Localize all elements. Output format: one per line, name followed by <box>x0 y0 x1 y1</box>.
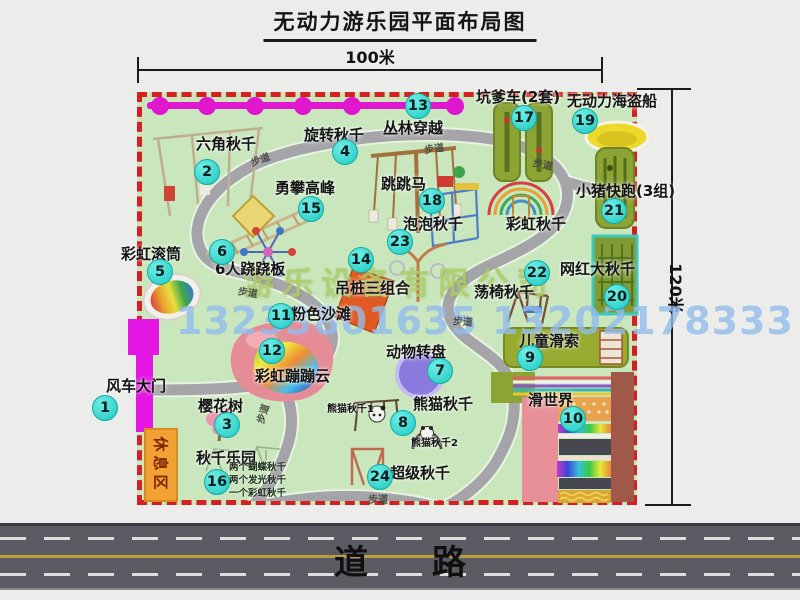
swing-park-note: 两个发光秋千 <box>229 475 286 487</box>
badge-panda-swing: 8 <box>390 410 416 436</box>
label-cherry-tree: 樱花树 <box>198 398 243 415</box>
dimension-tick <box>645 504 691 506</box>
label-swing-chair: 荡椅秋千 <box>474 284 534 301</box>
badge-kengdie-car: 17 <box>511 105 537 131</box>
label-super-swing: 超级秋千 <box>390 465 450 482</box>
label-panda-swing: 熊猫秋千 <box>413 396 473 413</box>
label-slide-world: 滑世界 <box>528 392 573 409</box>
badge-pink-beach: 11 <box>268 303 294 329</box>
label-panda-swing-2: 熊猫秋千2 <box>411 438 458 449</box>
badge-jumping-horse: 18 <box>419 188 445 214</box>
dimension-width-line <box>138 69 602 71</box>
badge-peak-climbing: 15 <box>298 196 324 222</box>
badge-animal-turntable: 7 <box>427 358 453 384</box>
label-kengdie-car: 坑爹车(2套) <box>476 89 560 106</box>
badge-piggy-run: 21 <box>601 198 627 224</box>
dimension-tick <box>601 57 603 83</box>
rest-area-label: 休息区 <box>151 436 172 493</box>
badge-bounce-cloud: 12 <box>259 338 285 364</box>
badge-super-swing: 24 <box>367 464 393 490</box>
label-pirate-ship: 无动力海盗船 <box>567 93 657 110</box>
road-label: 道 路 <box>0 535 800 584</box>
label-jungle-crossing: 丛林穿越 <box>383 120 443 137</box>
label-panda-swing-1: 熊猫秋千1 <box>327 404 374 415</box>
label-rainbow-swing: 彩虹秋千 <box>506 216 566 233</box>
label-windmill-gate: 风车大门 <box>106 378 166 395</box>
badge-slide-world: 10 <box>560 406 586 432</box>
dimension-tick <box>137 57 139 83</box>
badge-hexagon-swing: 2 <box>194 159 220 185</box>
label-rainbow-roller: 彩虹滚筒 <box>121 246 181 263</box>
label-rotating-swing: 旋转秋千 <box>304 127 364 144</box>
label-jumping-horse: 跳跳马 <box>381 176 426 193</box>
badge-bubble-swing: 23 <box>387 229 413 255</box>
badge-rainbow-roller: 5 <box>147 259 173 285</box>
label-peak-climbing: 勇攀高峰 <box>275 180 335 197</box>
badge-pirate-ship: 19 <box>572 108 598 134</box>
badge-hanging-post-combo: 14 <box>348 247 374 273</box>
label-bounce-cloud: 彩虹蹦蹦云 <box>255 368 330 385</box>
walkway-label: 步道 <box>453 312 474 328</box>
badge-seesaw: 6 <box>209 239 235 265</box>
badge-swing-park: 16 <box>204 469 230 495</box>
dimension-width-label: 100米 <box>138 44 602 68</box>
park-layout-poster: 无动力游乐园平面布局图 100米 120米 <box>0 0 800 600</box>
badge-cherry-tree: 3 <box>214 412 240 438</box>
label-piggy-run: 小猪快跑(3组) <box>576 183 675 200</box>
badge-kids-zipline: 9 <box>517 345 543 371</box>
walkway-label: 步道 <box>423 139 445 157</box>
road: 道 路 <box>0 523 800 590</box>
label-hexagon-swing: 六角秋千 <box>196 136 256 153</box>
badge-rotating-swing: 4 <box>332 139 358 165</box>
label-bubble-swing: 泡泡秋千 <box>403 216 463 233</box>
swing-park-note: 一个彩虹秋千 <box>229 488 286 500</box>
badge-swing-chair: 22 <box>524 260 550 286</box>
badge-big-swing: 20 <box>604 284 630 310</box>
dimension-tick <box>637 88 691 90</box>
label-pink-beach: 粉色沙滩 <box>291 306 351 323</box>
walkway-label: 步道 <box>368 491 388 506</box>
label-hanging-post-combo: 吊桩三组合 <box>335 280 410 297</box>
badge-jungle-crossing: 13 <box>405 93 431 119</box>
page-title: 无动力游乐园平面布局图 <box>264 6 537 42</box>
walkway-label: 步道 <box>237 282 259 300</box>
swing-park-note: 两个蝴蝶秋千 <box>229 462 286 474</box>
badge-windmill-gate: 1 <box>92 395 118 421</box>
label-big-swing: 网红大秋千 <box>560 261 635 278</box>
